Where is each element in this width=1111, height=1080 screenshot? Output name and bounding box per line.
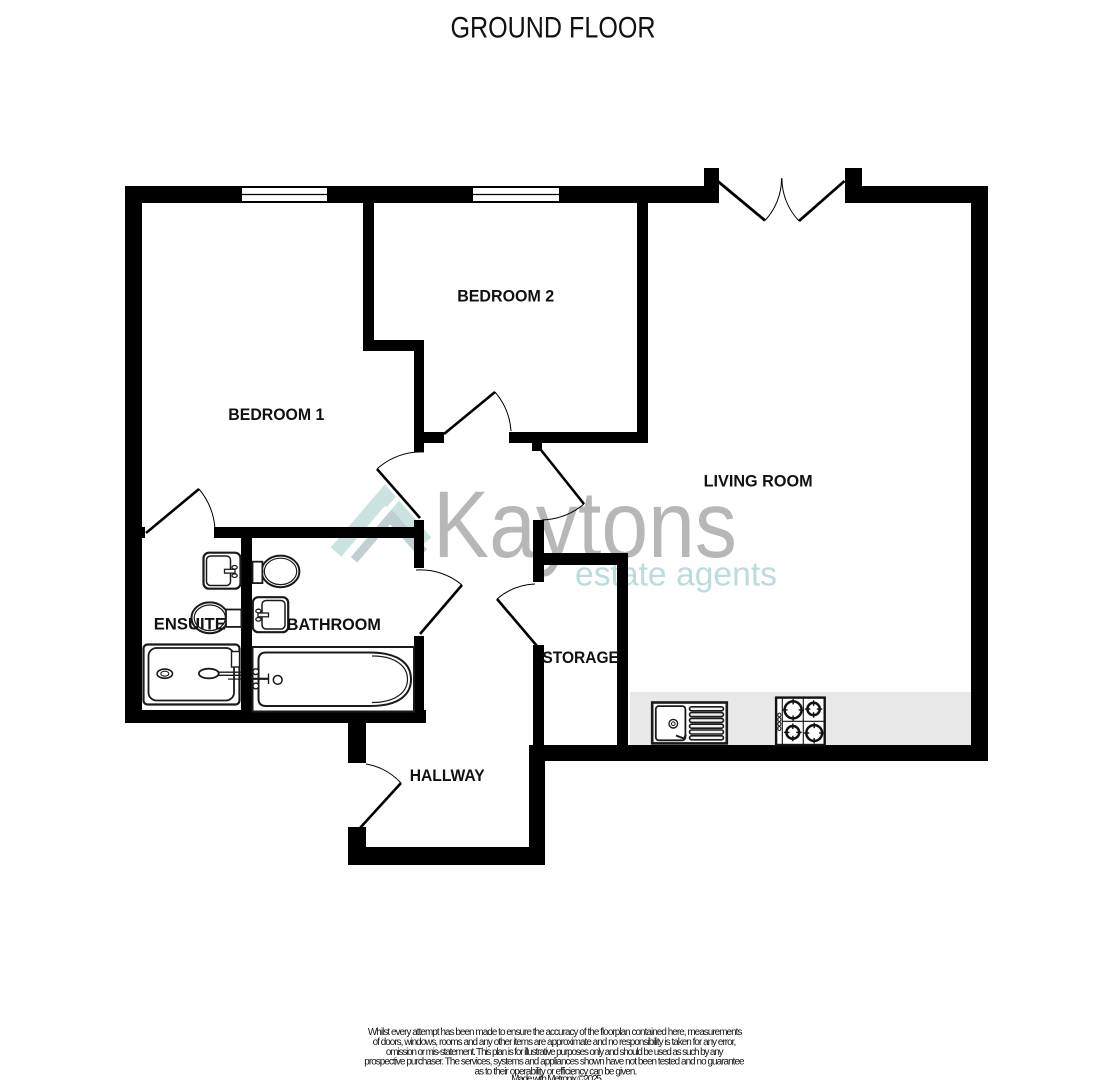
svg-text:BEDROOM 2: BEDROOM 2: [457, 287, 554, 306]
svg-text:ENSUITE: ENSUITE: [154, 615, 226, 634]
svg-text:BATHROOM: BATHROOM: [287, 615, 381, 634]
svg-text:HALLWAY: HALLWAY: [410, 766, 486, 785]
svg-text:STORAGE: STORAGE: [542, 648, 619, 667]
svg-text:GROUND FLOOR: GROUND FLOOR: [451, 11, 656, 44]
svg-text:Made with Metropix ©2025: Made with Metropix ©2025: [511, 1074, 602, 1080]
svg-text:LIVING ROOM: LIVING ROOM: [704, 472, 813, 491]
svg-text:BEDROOM 1: BEDROOM 1: [228, 405, 324, 424]
